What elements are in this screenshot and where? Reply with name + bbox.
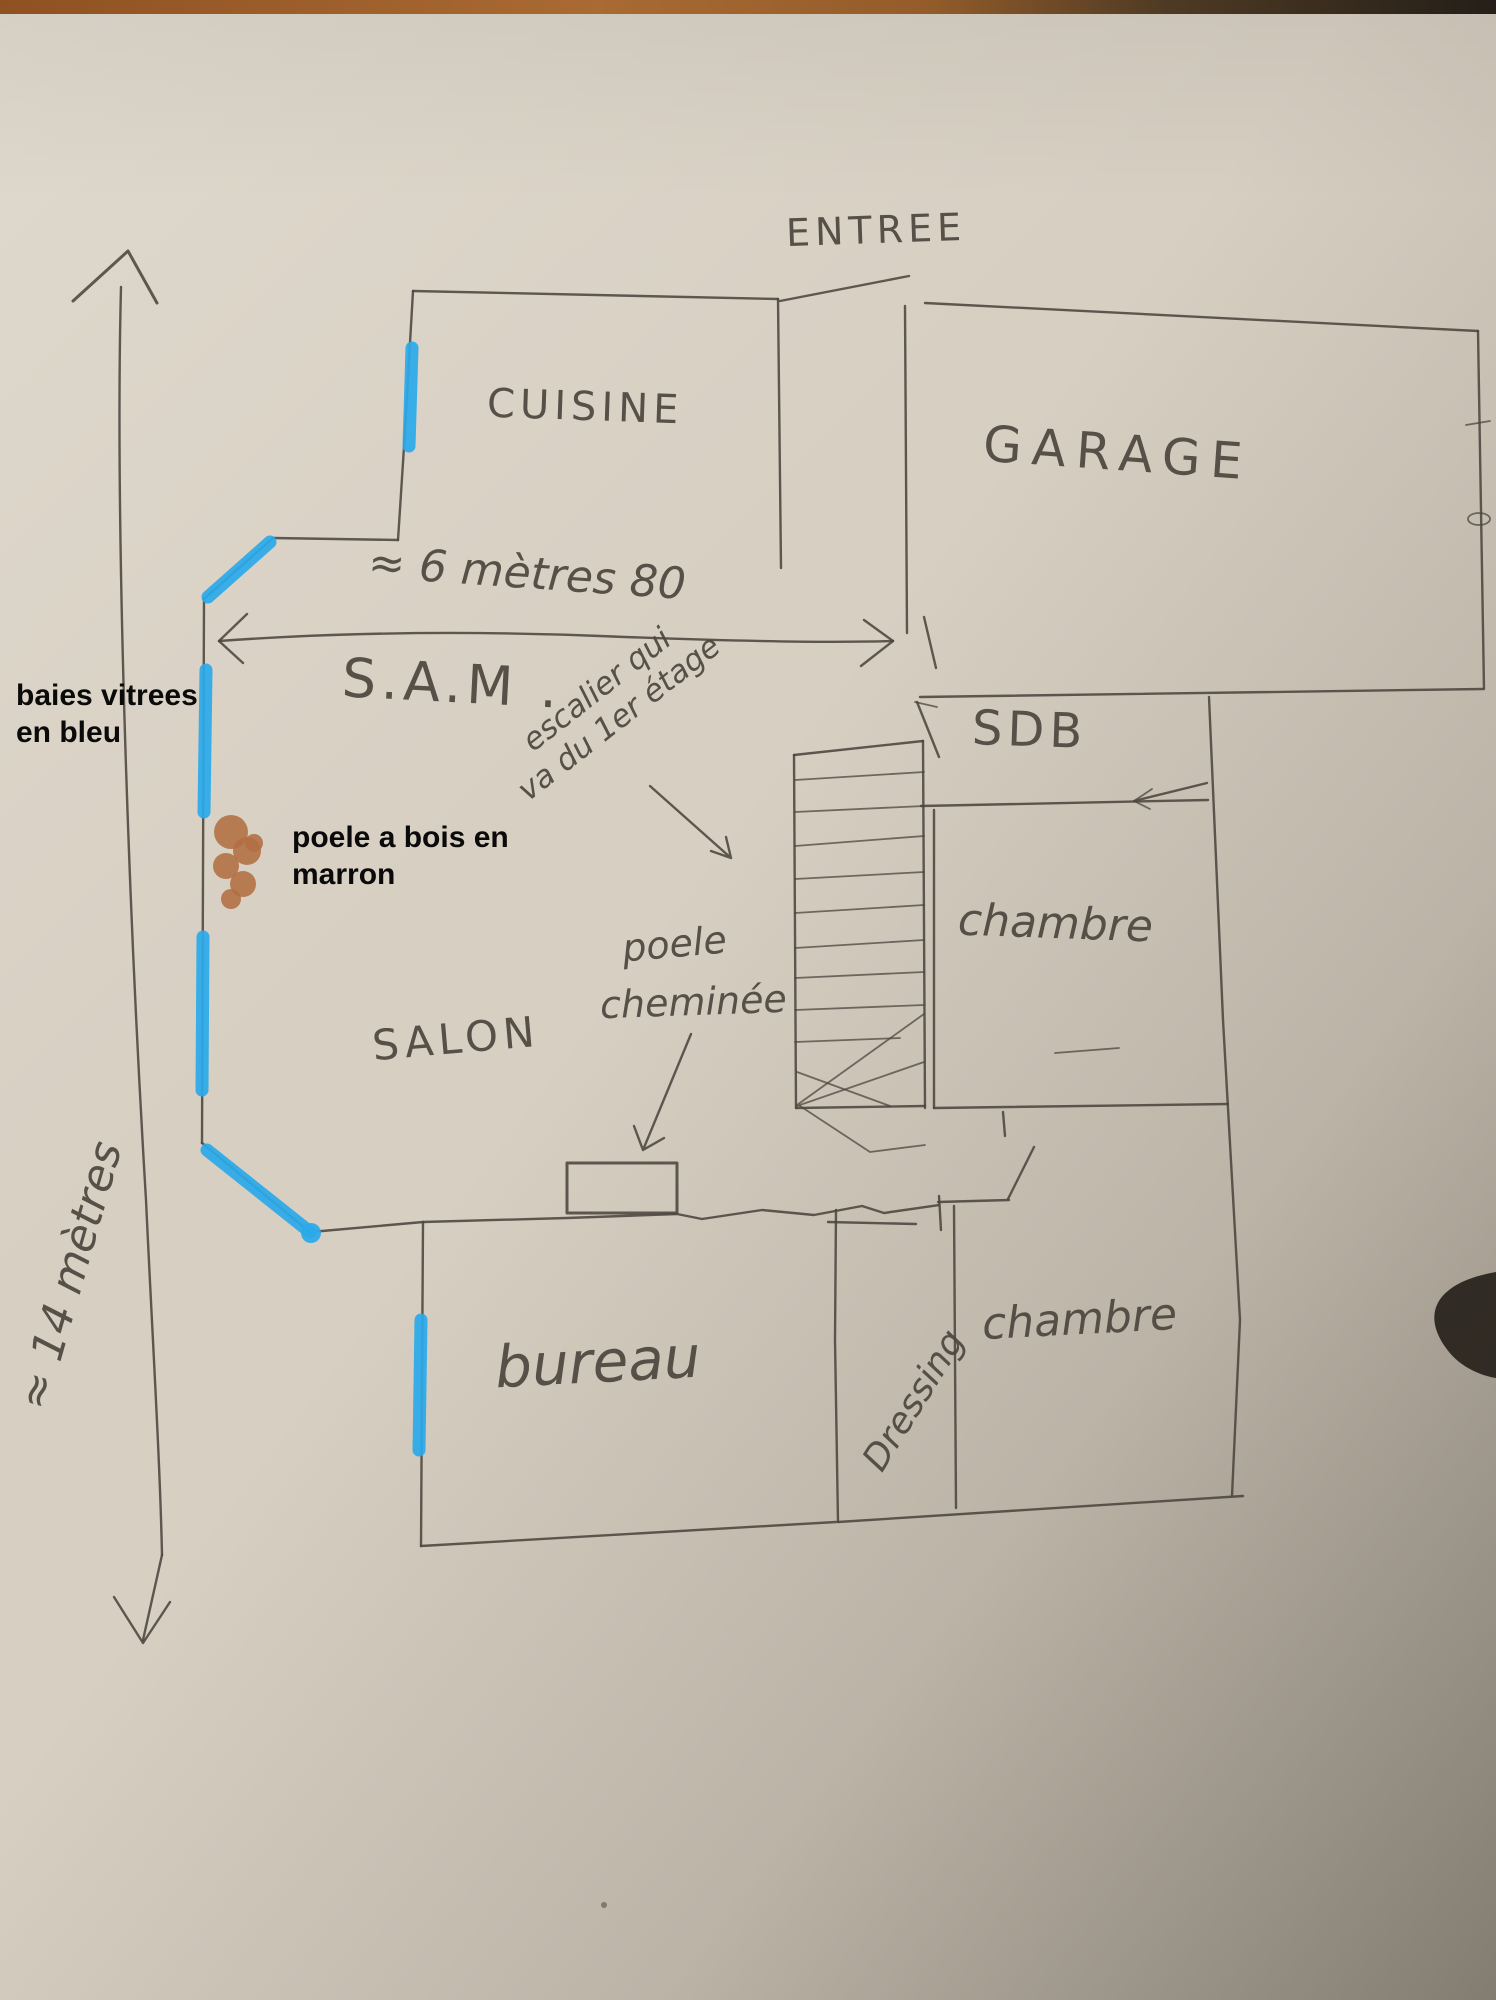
annotation-baies-line1: baies vitrees <box>16 678 198 715</box>
annotation-baies-line2: en bleu <box>16 715 198 752</box>
baie-vitree-cuisine <box>409 348 412 446</box>
stray-pencil-mark <box>1055 1048 1119 1053</box>
door-swing-sam-1 <box>924 617 936 668</box>
door-swing-sdb <box>1134 783 1207 801</box>
baie-vitree-bureau <box>419 1320 421 1450</box>
note-poele-line2: cheminée <box>599 977 787 1027</box>
annotation-poele-line1: poele a bois en <box>292 820 509 857</box>
wall-dressing-haut <box>828 1222 916 1224</box>
stairs-winder <box>797 1062 924 1106</box>
baie-vitree-diagonale-bas <box>207 1150 310 1232</box>
arrow-14m-head-top <box>73 251 157 303</box>
door-swing-chambre-bas <box>1008 1147 1034 1199</box>
room-label-cuisine: CUISINE <box>486 381 684 434</box>
room-label-sdb: SDB <box>971 700 1088 760</box>
stairs-tread <box>795 1005 924 1010</box>
wall-sdb-bas <box>921 800 1208 806</box>
stairs-tread <box>795 836 924 846</box>
stairs-tread <box>795 772 924 780</box>
wall-garage-droite <box>1478 331 1484 689</box>
room-label-chambre-bas: chambre <box>981 1289 1178 1350</box>
stairs-bottom <box>796 1106 925 1108</box>
arrow-6m80-head-right <box>861 620 893 666</box>
arrow-to-stairs <box>650 786 731 858</box>
room-label-sam: S.A.M . <box>341 646 565 720</box>
note-poele-line1: poele <box>620 918 728 971</box>
annotation-poele-line2: marron <box>292 857 509 894</box>
wall-bas-droite <box>838 1496 1243 1522</box>
stairs-tread <box>795 905 924 913</box>
garage-door-tick <box>1466 421 1490 425</box>
door-swing-entree <box>780 276 909 301</box>
wall-cuisine-top <box>413 291 778 299</box>
stairs-tread <box>795 972 924 978</box>
room-label-bureau: bureau <box>493 1323 702 1402</box>
arrow-to-poele <box>634 1034 691 1150</box>
wall-chambre-milieu-bas <box>934 1104 1228 1108</box>
arrow-14m-head-bottom <box>114 1597 170 1643</box>
wall-droite-exterieur <box>1209 697 1240 1496</box>
stairs-tread <box>794 741 923 755</box>
wall-salon-bas <box>311 1205 939 1232</box>
stairs <box>794 741 925 1152</box>
wall-cuisine-right <box>778 299 781 568</box>
stairs-winder <box>800 1106 925 1152</box>
stairs-rail-left <box>794 755 796 1108</box>
wall-couloir-droite <box>905 306 907 633</box>
poele-cheminee-symbol <box>567 1163 677 1213</box>
stairs-tread <box>795 872 924 879</box>
garage-door-handle <box>1468 513 1490 525</box>
poele-a-bois-mark <box>213 815 263 909</box>
wall-bureau-droite <box>835 1210 838 1522</box>
wall-garage-haut <box>925 303 1478 331</box>
stray-dot <box>601 1902 607 1908</box>
annotation-poele-bois: poele a bois en marron <box>292 820 509 893</box>
stairs-tread <box>795 940 924 948</box>
wall-bureau-bas <box>421 1522 836 1546</box>
annotation-baies-vitrees: baies vitrees en bleu <box>16 678 198 751</box>
door-jamb-chambre-milieu <box>1003 1112 1005 1136</box>
wall-chambre-bas-haut <box>938 1200 1009 1202</box>
arrow-6m80-shaft <box>219 633 893 642</box>
stairs-tread <box>795 806 924 812</box>
baie-vitree-salon <box>202 937 203 1090</box>
wall-garage-bas <box>920 689 1483 697</box>
baie-vitree-sam <box>204 670 206 812</box>
dark-object-photo-edge <box>1434 1272 1496 1378</box>
measure-arrows <box>73 251 893 1643</box>
door-swing-sam-2 <box>917 702 939 757</box>
stairs-winder <box>797 1014 924 1105</box>
floor-plan-photo: ENTREE CUISINE GARAGE S.A.M . SDB chambr… <box>0 0 1496 2000</box>
stairs-rail-right <box>923 741 925 1108</box>
room-label-chambre-milieu: chambre <box>957 895 1154 953</box>
baie-vitree-diagonale-haut <box>208 542 270 597</box>
walls <box>202 276 1490 1546</box>
room-label-entree: ENTREE <box>785 205 967 255</box>
arrow-14m-shaft <box>120 287 162 1555</box>
baie-vitree-blob <box>301 1223 321 1243</box>
